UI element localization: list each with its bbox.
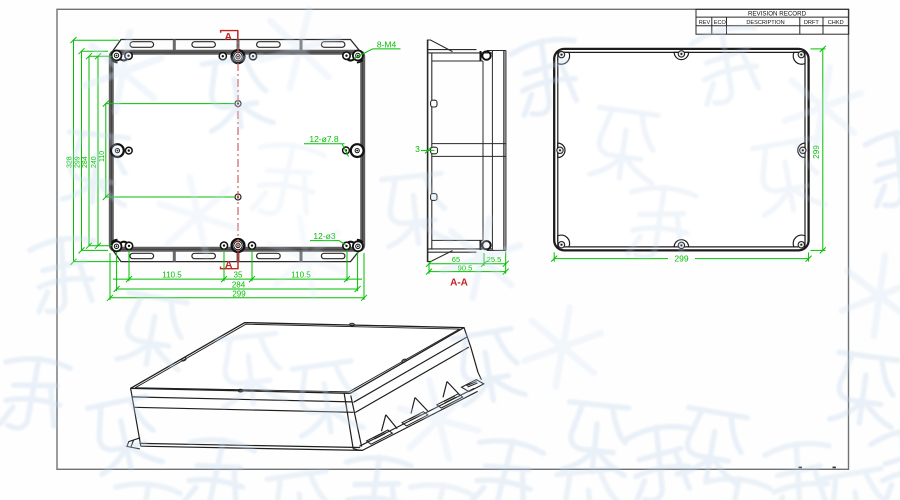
- svg-text:A: A: [225, 31, 233, 43]
- svg-text:284: 284: [82, 156, 89, 168]
- svg-text:299: 299: [232, 289, 246, 298]
- svg-text:DRFT: DRFT: [804, 20, 819, 26]
- svg-text:284: 284: [232, 281, 246, 290]
- svg-text:A-A: A-A: [450, 278, 468, 289]
- svg-text:12-ø7.8: 12-ø7.8: [309, 134, 339, 144]
- svg-text:110: 110: [99, 151, 106, 162]
- svg-text:35: 35: [234, 271, 243, 280]
- svg-text:3: 3: [415, 144, 420, 154]
- svg-text:DESCRIPTION: DESCRIPTION: [746, 20, 784, 26]
- svg-text:REVISION RECORD: REVISION RECORD: [748, 11, 807, 18]
- svg-text:ECO: ECO: [714, 20, 727, 26]
- svg-text:A: A: [225, 259, 233, 271]
- svg-text:REV: REV: [699, 20, 711, 26]
- svg-text:110.5: 110.5: [162, 271, 182, 280]
- svg-text:CHKD: CHKD: [828, 20, 844, 26]
- svg-text:8-M4: 8-M4: [377, 40, 397, 50]
